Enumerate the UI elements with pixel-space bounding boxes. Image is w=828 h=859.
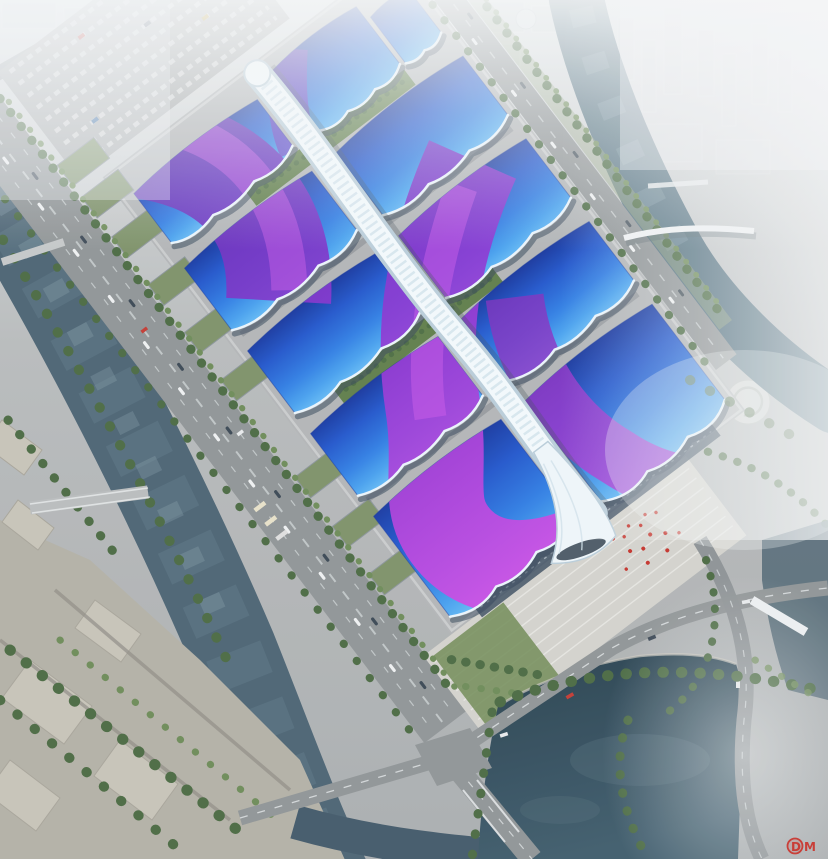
aerial-rendering-exhibition-center: DM (0, 0, 828, 859)
watermark-text: DM (791, 840, 819, 854)
scene-canvas: DM (0, 0, 828, 859)
atmospheric-haze (0, 0, 828, 859)
watermark: DM (788, 839, 819, 855)
